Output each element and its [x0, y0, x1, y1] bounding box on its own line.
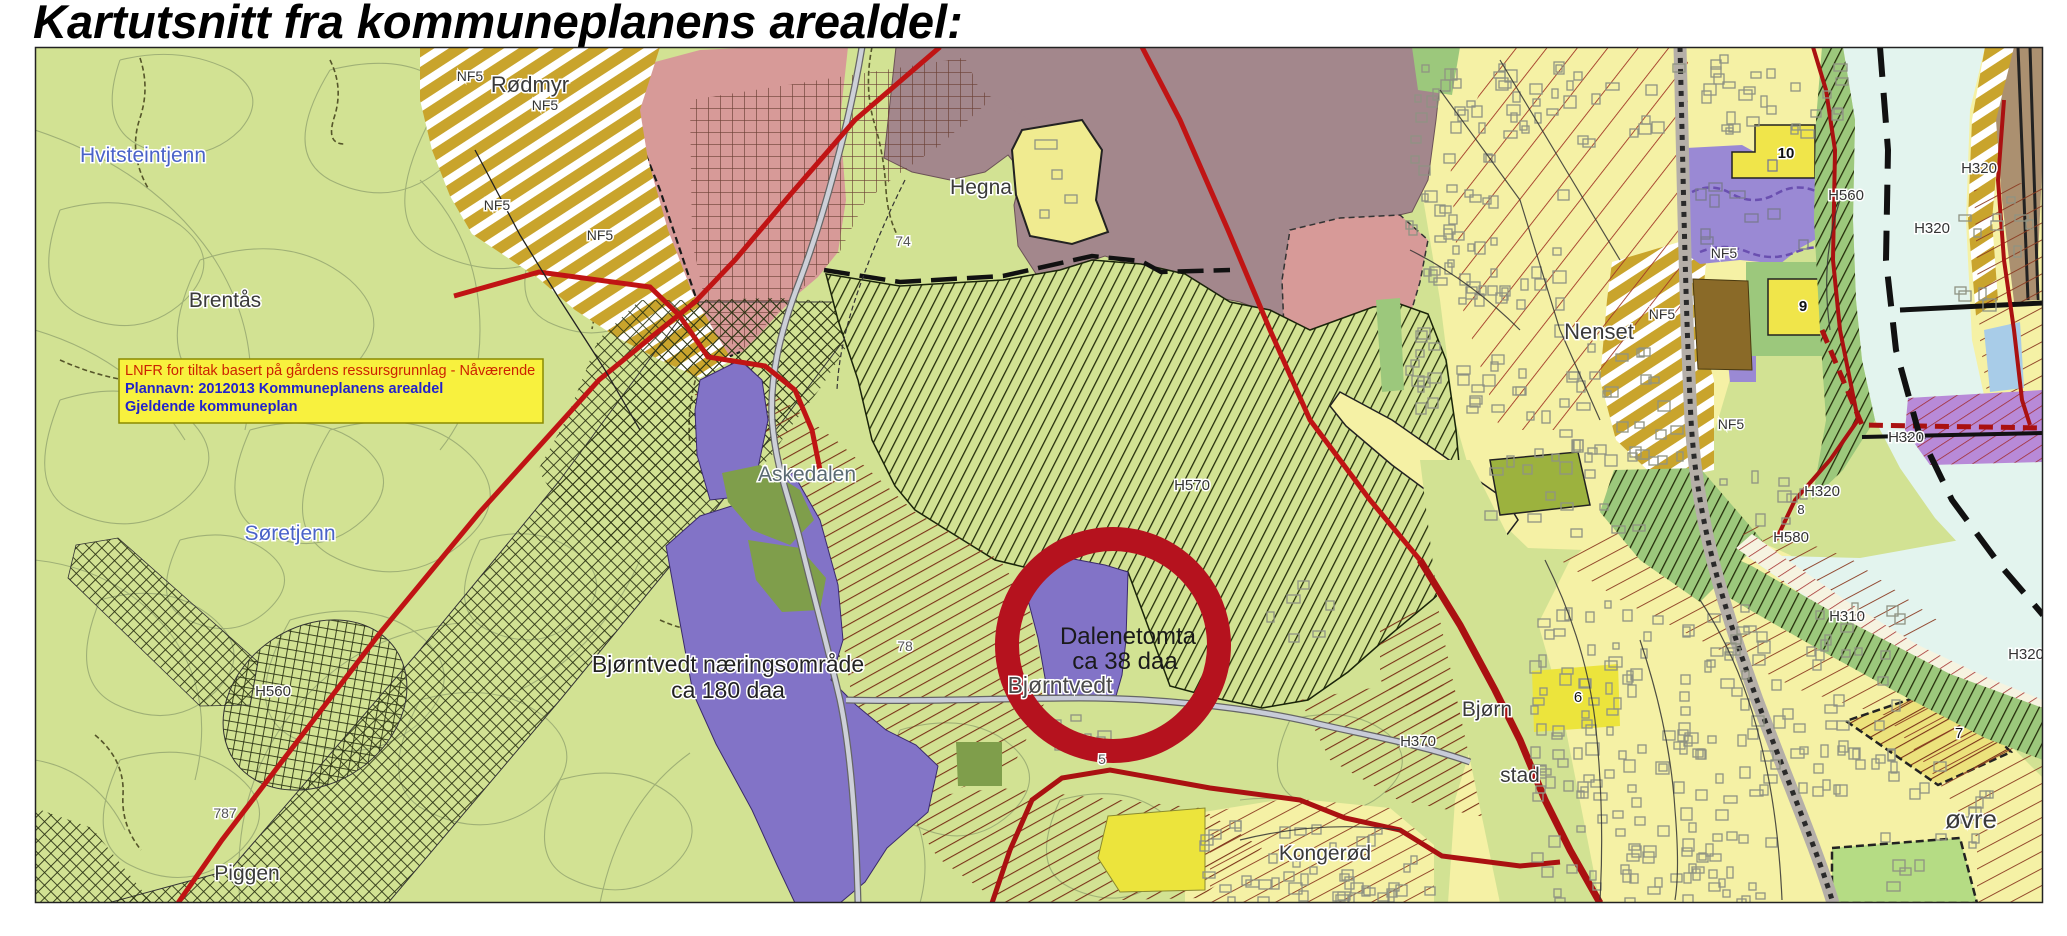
svg-text:Kongerød: Kongerød	[1279, 842, 1371, 865]
svg-text:H560: H560	[255, 683, 291, 700]
svg-text:H560: H560	[1828, 187, 1864, 204]
svg-text:Kartutsnitt fra kommuneplanens: Kartutsnitt fra kommuneplanens arealdel:	[33, 0, 963, 48]
svg-text:H320: H320	[1914, 220, 1950, 237]
svg-text:H310: H310	[1829, 608, 1865, 625]
svg-text:H320: H320	[1804, 483, 1840, 500]
svg-text:Bjørn: Bjørn	[1462, 698, 1512, 721]
svg-text:Rødmyr: Rødmyr	[491, 72, 569, 97]
svg-text:74: 74	[895, 233, 911, 249]
svg-text:8: 8	[1797, 502, 1804, 517]
svg-text:NF5: NF5	[587, 227, 614, 243]
svg-text:H580: H580	[1773, 529, 1809, 546]
svg-text:H320: H320	[1888, 429, 1924, 446]
svg-text:H320: H320	[1961, 160, 1997, 177]
svg-text:H570: H570	[1174, 477, 1210, 494]
svg-text:Gjeldende kommuneplan: Gjeldende kommuneplan	[125, 399, 297, 415]
svg-text:787: 787	[213, 805, 237, 821]
svg-text:7: 7	[1955, 725, 1963, 742]
svg-text:Hvitsteintjenn: Hvitsteintjenn	[80, 144, 206, 167]
svg-text:Brentås: Brentås	[189, 289, 261, 312]
svg-text:ca 38 daa: ca 38 daa	[1072, 648, 1178, 675]
svg-text:5: 5	[1098, 751, 1106, 767]
svg-text:LNFR for tiltak basert på gård: LNFR for tiltak basert på gårdens ressur…	[125, 363, 535, 379]
svg-text:NF5: NF5	[1718, 416, 1745, 432]
svg-text:78: 78	[897, 638, 913, 654]
svg-text:Hegna: Hegna	[950, 176, 1012, 199]
svg-text:Bjørntvedt: Bjørntvedt	[1008, 672, 1113, 698]
svg-text:NF5: NF5	[1649, 306, 1676, 322]
svg-text:H370: H370	[1400, 733, 1436, 750]
svg-text:6: 6	[1574, 689, 1582, 706]
svg-text:stad: stad	[1500, 764, 1540, 787]
svg-text:Plannavn: 2012013 Kommuneplane: Plannavn: 2012013 Kommuneplanens arealde…	[125, 381, 443, 397]
svg-text:NF5: NF5	[484, 197, 511, 213]
svg-text:NF5: NF5	[532, 97, 559, 113]
svg-text:Søretjenn: Søretjenn	[244, 522, 335, 545]
svg-text:Bjørntvedt næringsområde: Bjørntvedt næringsområde	[592, 651, 864, 677]
svg-text:NF5: NF5	[1711, 245, 1738, 261]
svg-text:H320: H320	[2008, 646, 2044, 663]
svg-text:Askedalen: Askedalen	[758, 463, 856, 486]
svg-text:Dalenetomta: Dalenetomta	[1060, 623, 1197, 650]
svg-text:10: 10	[1778, 145, 1795, 162]
svg-text:NF5: NF5	[457, 68, 484, 84]
svg-text:Nenset: Nenset	[1564, 319, 1634, 344]
svg-text:Piggen: Piggen	[214, 862, 279, 885]
svg-text:ca 180 daa: ca 180 daa	[671, 677, 785, 703]
svg-text:9: 9	[1799, 298, 1807, 315]
svg-text:øvre: øvre	[1945, 804, 1997, 834]
